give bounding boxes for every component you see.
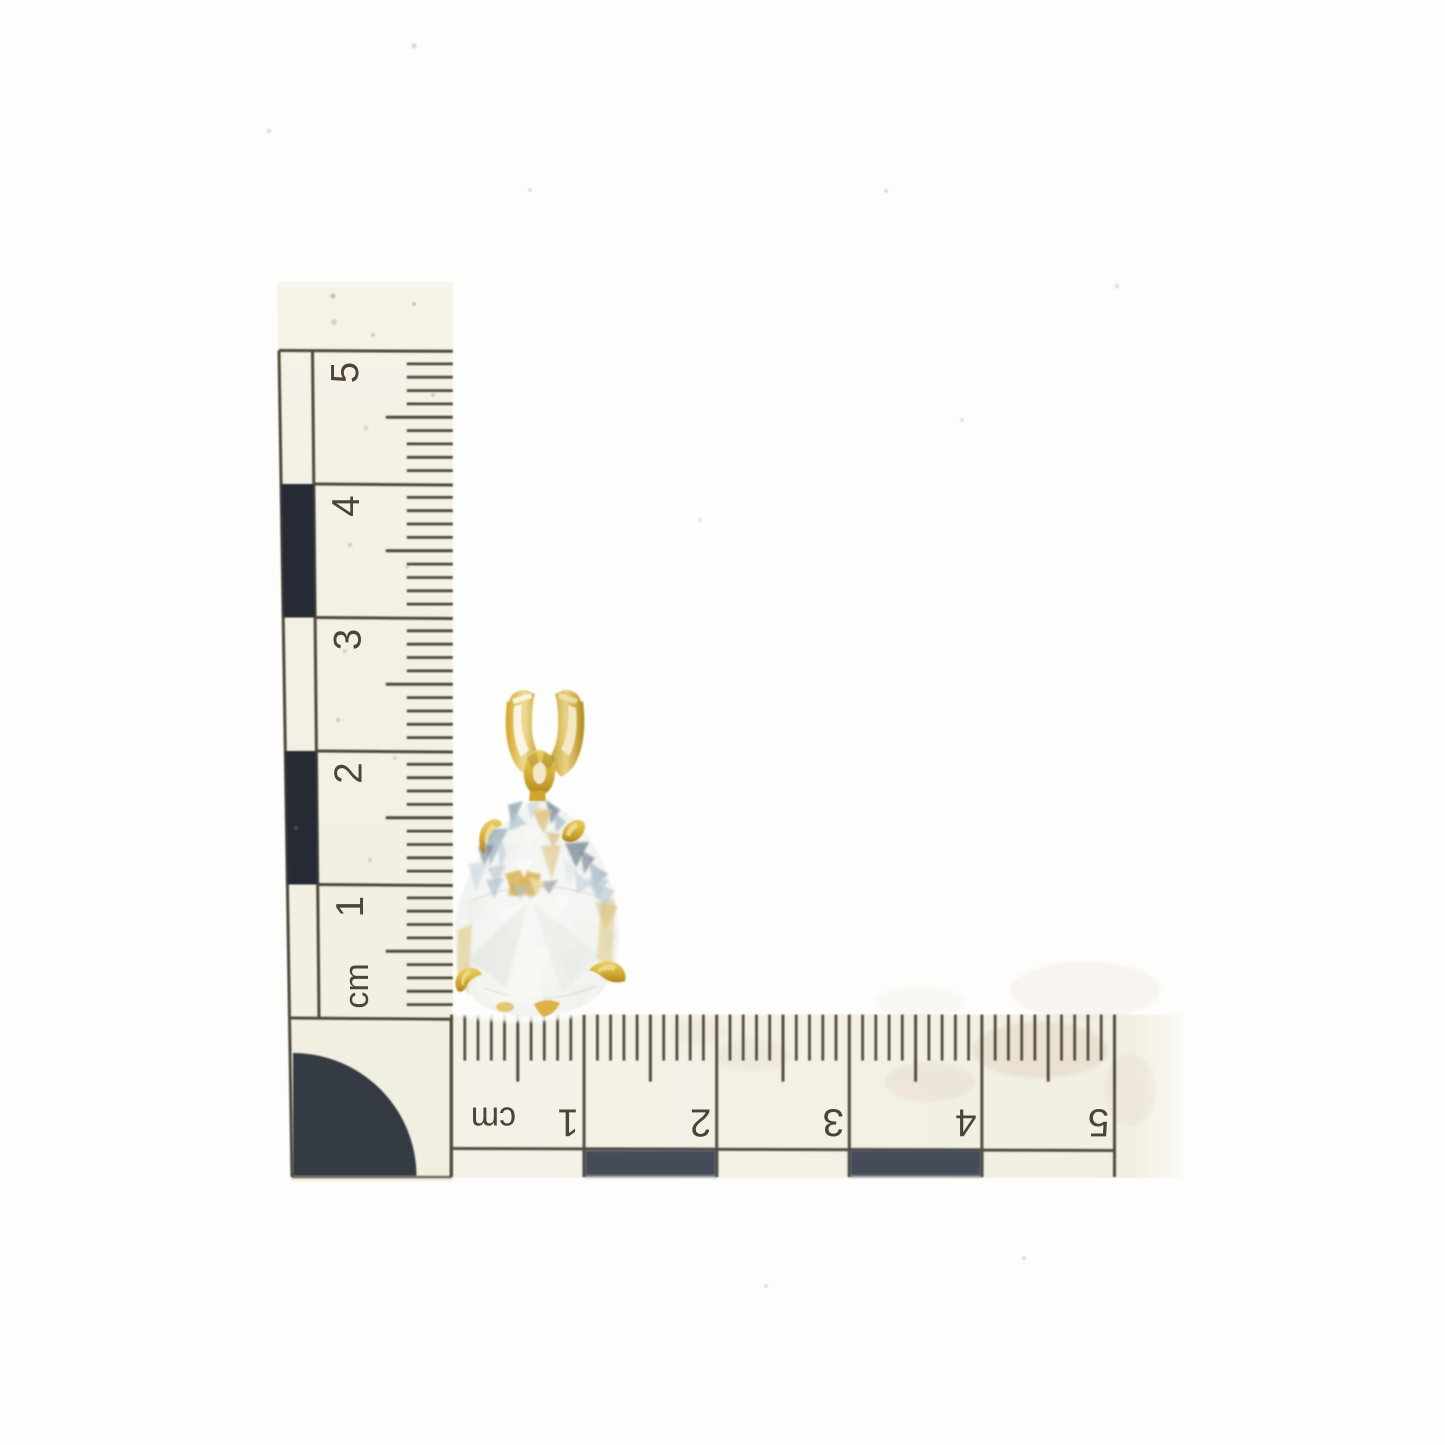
svg-text:1: 1 xyxy=(557,1101,578,1144)
svg-text:4: 4 xyxy=(955,1101,976,1144)
svg-text:cm: cm xyxy=(338,963,376,1008)
svg-text:3: 3 xyxy=(823,1101,844,1144)
svg-text:5: 5 xyxy=(1088,1101,1109,1144)
svg-text:2: 2 xyxy=(328,762,371,783)
svg-text:cm: cm xyxy=(471,1100,516,1138)
svg-text:2: 2 xyxy=(690,1101,711,1144)
svg-text:3: 3 xyxy=(326,629,369,650)
svg-text:1: 1 xyxy=(329,896,372,917)
svg-text:4: 4 xyxy=(325,495,368,516)
svg-text:5: 5 xyxy=(324,362,367,383)
